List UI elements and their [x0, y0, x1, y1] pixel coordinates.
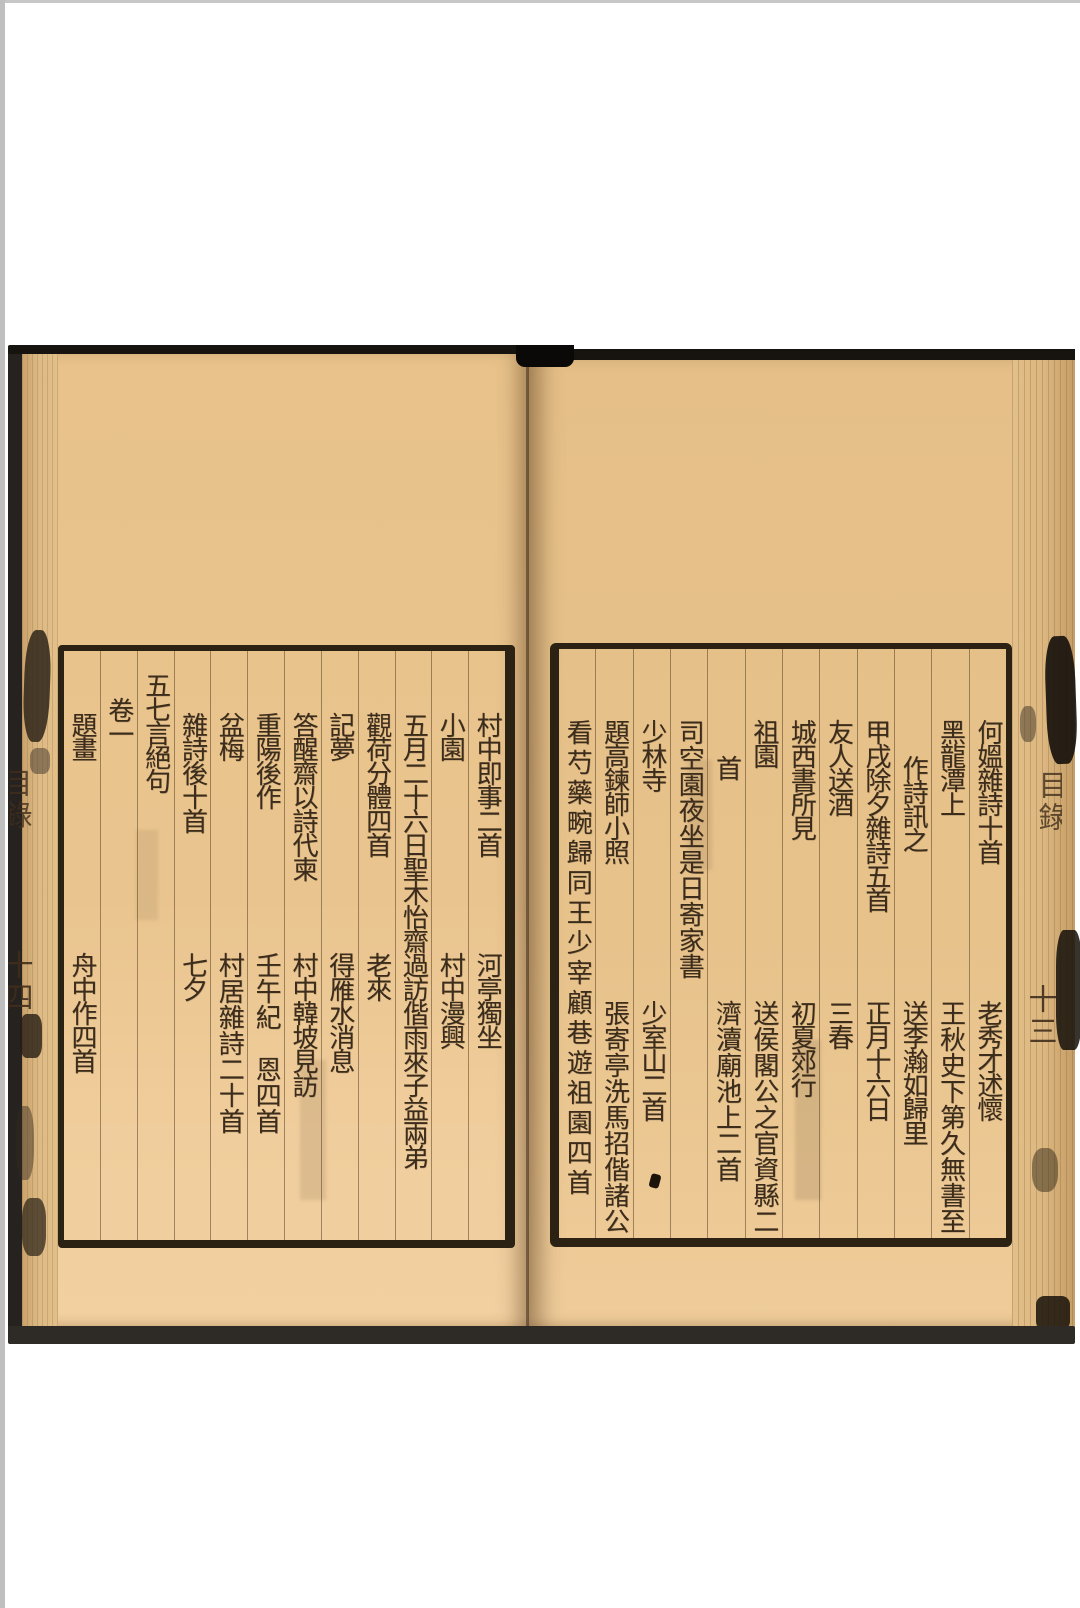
toc-column: 村中即事二首 河亭獨坐 — [468, 651, 505, 1240]
gutter-shadow-top — [516, 345, 574, 367]
page-top-edge-left — [8, 345, 528, 354]
toc-column: 記夢 得雁水消息 — [321, 651, 358, 1240]
toc-entry: 河亭獨坐 — [474, 952, 500, 1048]
toc-column: 盆梅 村居雜詩二十首 — [210, 651, 247, 1240]
left-page-text-frame: 村中即事二首 河亭獨坐 小園 村中漫興 五月二十六日聖木怡齋過訪偕雨來子益兩弟 … — [58, 645, 515, 1248]
toc-entry: 記夢 — [327, 712, 353, 760]
toc-entry: 三春 — [826, 1000, 852, 1048]
toc-column: 答醒齋以詩代柬 村中韓坡見訪 — [284, 651, 321, 1240]
toc-column: 祖園 送侯閣公之官資縣二 — [745, 649, 782, 1238]
toc-column: 黑龍潭上 王秋史下第久無書至 — [931, 649, 968, 1238]
edge-page-number-right: 十三 — [1026, 984, 1055, 1048]
toc-entry: 司空園夜坐是日寄家書 — [676, 719, 702, 979]
toc-entry: 老來 — [364, 952, 390, 1000]
toc-entry: 題畫 — [69, 712, 95, 760]
edge-title-right: 目錄 — [1036, 770, 1062, 834]
toc-entry: 小園 — [437, 712, 463, 760]
toc-entry: 王秋史下第久無書至 — [938, 1000, 964, 1234]
right-page-columns: 何媼雜詩十首 老秀才述懷 黑龍潭上 王秋史下第久無書至 作詩訊之 送李瀚如歸里 … — [559, 649, 1006, 1238]
fore-edge-left — [22, 352, 58, 1330]
page-bottom-edge — [8, 1326, 1075, 1344]
toc-entry: 城西書所見 — [788, 719, 814, 839]
edge-stain — [16, 1106, 34, 1180]
edge-page-number-left: 十四 — [8, 950, 31, 1014]
toc-column: 題畫 舟中作四首 — [64, 651, 100, 1240]
toc-entry: 初夏郊行 — [788, 1000, 814, 1096]
toc-entry: 送侯閣公之官資縣二 — [751, 1000, 777, 1234]
toc-entry: 重陽後作 — [253, 712, 279, 808]
toc-column: 五七言絕句 — [137, 651, 174, 1240]
edge-stain — [1032, 1148, 1058, 1192]
center-fold-line — [526, 354, 529, 1328]
left-page-columns: 村中即事二首 河亭獨坐 小園 村中漫興 五月二十六日聖木怡齋過訪偕雨來子益兩弟 … — [64, 651, 505, 1240]
section-header: 五七言絕句 — [143, 672, 169, 792]
toc-column: 小園 村中漫興 — [431, 651, 468, 1240]
toc-column: 何媼雜詩十首 老秀才述懷 — [969, 649, 1006, 1238]
toc-entry: 題高鍊師小照 — [602, 719, 628, 863]
toc-column: 卷一 — [100, 651, 137, 1240]
toc-column: 甲戌除夕雜詩五首 正月十六日 — [857, 649, 894, 1238]
toc-entry: 何媼雜詩十首 — [975, 719, 1001, 863]
toc-entry: 得雁水消息 — [327, 952, 353, 1072]
toc-column: 雜詩後十首 七夕 — [174, 651, 211, 1240]
toc-column: 首 濟瀆廟池上二首 — [707, 649, 744, 1238]
toc-entry-continuation: 作詩訊之 — [900, 755, 926, 851]
viewer-border-top — [0, 0, 1080, 3]
toc-column: 作詩訊之 送李瀚如歸里 — [894, 649, 931, 1238]
toc-entry-honorific-space: 壬午紀 恩四首 — [253, 952, 279, 1134]
toc-entry: 張寄亭洗馬招偕諸公 — [602, 1000, 628, 1234]
toc-entry: 觀荷分體四首 — [364, 712, 390, 856]
toc-column: 觀荷分體四首 老來 — [358, 651, 395, 1240]
toc-column: 五月二十六日聖木怡齋過訪偕雨來子益兩弟 — [395, 651, 432, 1240]
right-page-text-frame: 何媼雜詩十首 老秀才述懷 黑龍潭上 王秋史下第久無書至 作詩訊之 送李瀚如歸里 … — [550, 643, 1012, 1247]
edge-stain — [1036, 1296, 1070, 1330]
toc-entry: 送李瀚如歸里 — [900, 1000, 926, 1144]
page-top-edge-right — [528, 349, 1075, 360]
toc-entry: 雜詩後十首 — [179, 712, 205, 832]
toc-entry: 五月二十六日聖木怡齋過訪偕雨來子益兩弟 — [400, 712, 426, 1168]
toc-entry: 老秀才述懷 — [975, 1000, 1001, 1120]
toc-entry: 祖園 — [751, 719, 777, 767]
toc-column: 看芍藥畹歸同王少宰顧巷遊祖園四首 — [559, 649, 595, 1238]
toc-column: 重陽後作 壬午紀 恩四首 — [247, 651, 284, 1240]
toc-column: 少林寺 少室山二首 — [633, 649, 670, 1238]
toc-entry-continuation: 首 — [714, 755, 740, 779]
toc-entry: 黑龍潭上 — [938, 719, 964, 815]
book-scan-viewer: 目錄 十四 目錄 十三 何媼雜詩十首 老秀才述懷 黑龍潭上 王秋史下第久無書至 — [0, 0, 1080, 1608]
book-cover-edge-left — [8, 348, 22, 1340]
edge-stain — [1056, 930, 1080, 1050]
toc-entry: 村中漫興 — [437, 952, 463, 1048]
toc-entry: 答醒齋以詩代柬 — [290, 712, 316, 880]
toc-entry: 舟中作四首 — [69, 952, 95, 1072]
toc-entry: 濟瀆廟池上二首 — [714, 1000, 740, 1182]
edge-stain — [20, 1014, 42, 1058]
edge-title-left: 目錄 — [10, 768, 30, 832]
toc-entry: 七夕 — [179, 952, 205, 1000]
edge-stain — [22, 1198, 46, 1256]
viewer-border-left — [0, 0, 5, 1608]
toc-entry: 村中即事二首 — [474, 712, 500, 856]
edge-stain — [1020, 706, 1036, 742]
volume-header: 卷一 — [106, 697, 132, 745]
toc-entry: 村居雜詩二十首 — [216, 952, 242, 1134]
toc-entry: 友人送酒 — [826, 719, 852, 815]
toc-entry: 正月十六日 — [863, 1000, 889, 1120]
toc-entry: 少林寺 — [639, 719, 665, 791]
toc-entry: 村中韓坡見訪 — [290, 952, 316, 1096]
toc-entry: 看芍藥畹歸同王少宰顧巷遊祖園四首 — [564, 719, 590, 1199]
toc-column: 題高鍊師小照 張寄亭洗馬招偕諸公 — [595, 649, 632, 1238]
toc-entry: 甲戌除夕雜詩五首 — [863, 719, 889, 911]
toc-entry: 少室山二首 — [639, 1000, 665, 1120]
toc-column: 城西書所見 初夏郊行 — [782, 649, 819, 1238]
toc-column: 友人送酒 三春 — [819, 649, 856, 1238]
toc-entry: 盆梅 — [216, 712, 242, 760]
toc-column: 司空園夜坐是日寄家書 — [670, 649, 707, 1238]
